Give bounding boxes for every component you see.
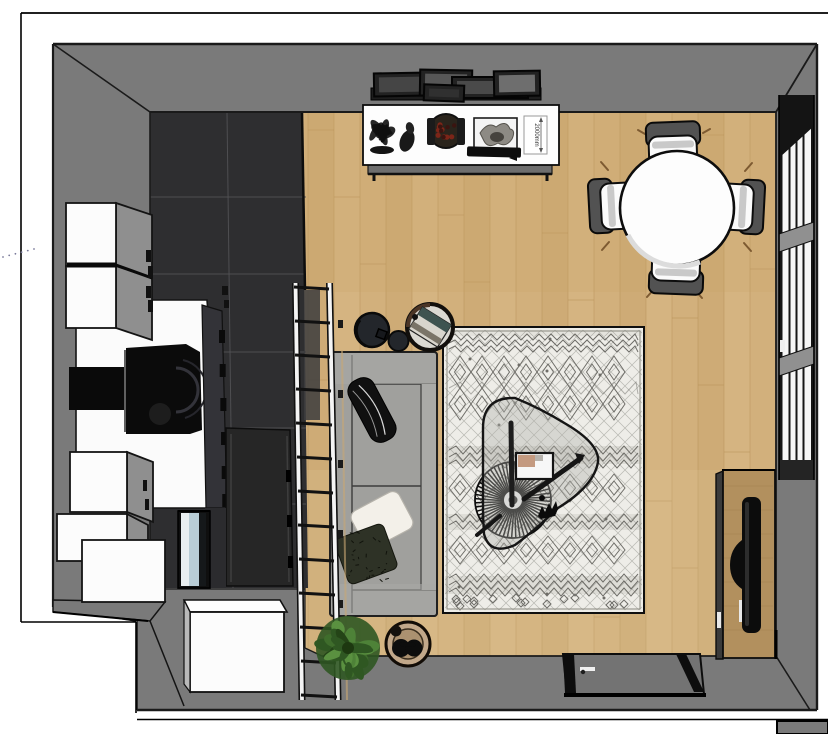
svg-text:2000mm: 2000mm <box>533 123 539 146</box>
